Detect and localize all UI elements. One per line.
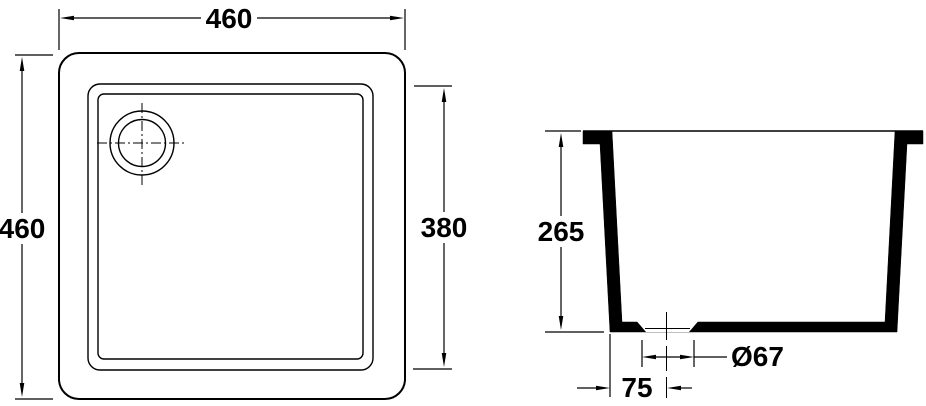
- arrowhead-right: [596, 386, 610, 391]
- arrowhead-right: [390, 16, 404, 21]
- sink-basin-rim: [88, 84, 373, 370]
- arrowhead-down: [559, 316, 564, 330]
- dim-drain-offset: 75: [577, 334, 692, 403]
- sink-cross-section-body: [583, 131, 923, 332]
- arrowhead-left: [667, 386, 681, 391]
- dim-basin-width: 380: [413, 86, 467, 369]
- arrowhead-left: [60, 16, 74, 21]
- dim-top-width-label: 460: [206, 3, 253, 34]
- arrowhead-up: [20, 57, 25, 71]
- sink-dimension-drawing: 460 460 380 2: [0, 0, 926, 406]
- sink-basin-inner-edge: [98, 94, 363, 359]
- dim-drain-diameter-label: Ø67: [731, 341, 784, 372]
- sink-outer-edge: [59, 53, 405, 399]
- dim-top-width: 460: [59, 3, 405, 50]
- drain-recess-cutout: [637, 322, 698, 333]
- dim-depth: 265: [538, 131, 604, 332]
- arrowhead-down: [20, 383, 25, 397]
- dim-depth-label: 265: [538, 216, 585, 247]
- arrowhead-down: [442, 353, 447, 367]
- dim-basin-width-label: 380: [421, 212, 468, 243]
- dim-drain-diameter: Ø67: [642, 340, 784, 372]
- arrowhead-left: [642, 355, 656, 360]
- dim-left-height: 460: [0, 55, 53, 399]
- top-view: [59, 53, 405, 399]
- dim-drain-offset-label: 75: [621, 372, 652, 403]
- dim-left-height-label: 460: [0, 213, 45, 244]
- arrowhead-up: [442, 88, 447, 102]
- arrowhead-right: [680, 355, 694, 360]
- arrowhead-up: [559, 133, 564, 147]
- drawing-canvas: 460 460 380 2: [0, 0, 926, 406]
